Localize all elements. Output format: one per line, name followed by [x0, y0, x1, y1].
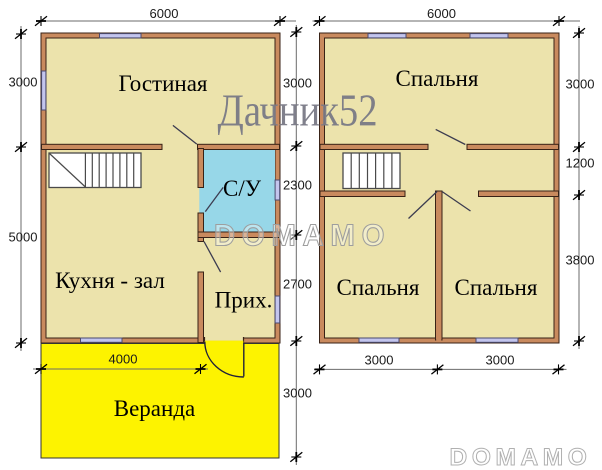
svg-text:С/У: С/У: [223, 176, 262, 201]
svg-text:5000: 5000: [9, 230, 38, 245]
svg-text:6000: 6000: [150, 6, 179, 21]
svg-text:3000: 3000: [365, 353, 394, 368]
svg-text:Дачник52: Дачник52: [218, 86, 378, 136]
svg-text:3800: 3800: [566, 253, 595, 268]
svg-text:2300: 2300: [283, 178, 312, 193]
svg-text:3000: 3000: [566, 77, 595, 92]
svg-text:6000: 6000: [427, 6, 456, 21]
svg-text:Спальня: Спальня: [455, 275, 538, 300]
svg-text:Веранда: Веранда: [114, 396, 195, 421]
svg-text:Кухня - зал: Кухня - зал: [55, 268, 165, 293]
svg-text:Гостиная: Гостиная: [118, 71, 207, 96]
svg-text:Спальня: Спальня: [337, 275, 420, 300]
svg-text:3000: 3000: [283, 386, 312, 401]
svg-text:DOMAMO: DOMAMO: [450, 444, 592, 470]
svg-text:2700: 2700: [283, 277, 312, 292]
svg-text:Прих.: Прих.: [215, 288, 273, 313]
svg-text:4000: 4000: [109, 352, 138, 367]
svg-text:1200: 1200: [566, 156, 595, 171]
svg-text:DOMAMO: DOMAMO: [214, 219, 391, 253]
svg-text:3000: 3000: [9, 75, 38, 90]
svg-text:Спальня: Спальня: [396, 66, 479, 91]
svg-text:3000: 3000: [486, 353, 515, 368]
